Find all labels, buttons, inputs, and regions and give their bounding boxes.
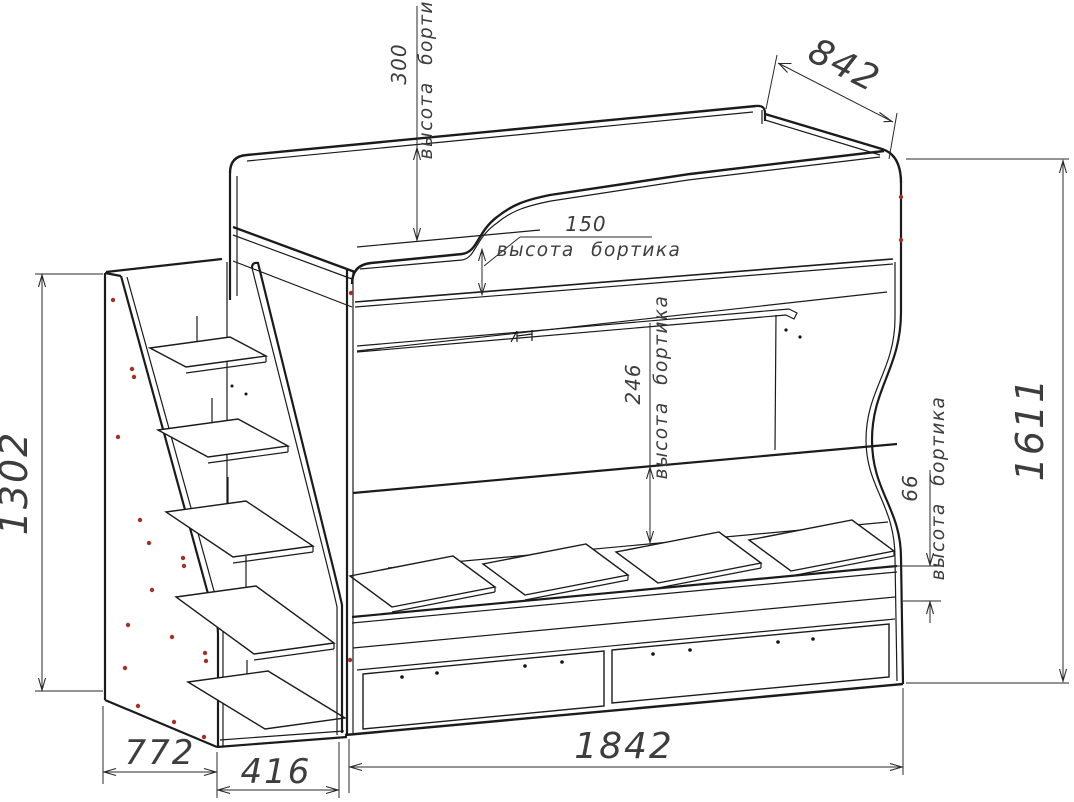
dimension-150: 150 высота бортика [479,212,682,295]
dim-842-value: 842 [802,31,887,101]
dimension-246: 246 высота бортика [621,295,672,543]
dim-150-label: высота бортика [497,240,682,261]
dim-300-value: 300 [387,43,411,84]
drawer-right [612,624,889,703]
dim-150-value: 150 [565,212,606,236]
bed-left-edge [347,270,353,735]
upper-back-rail [230,106,765,300]
dimension-416: 416 [217,742,339,798]
dim-1611-value: 1611 [1008,377,1052,482]
dim-246-label: высота бортика [651,295,672,480]
dim-66-label: высота бортика [928,396,949,581]
dim-772-value: 772 [125,733,196,773]
dim-300-label: высота бортика [416,0,437,159]
drawing-canvas: 1302 772 416 1842 1611 842 [0,0,1074,802]
dim-1302-value: 1302 [0,431,36,536]
dimension-300: 300 высота бортика [387,0,437,241]
bunk-bed-technical-drawing: 1302 772 416 1842 1611 842 [0,0,1074,802]
dim-1842-value: 1842 [574,726,674,767]
dimension-1302: 1302 [0,274,103,691]
dim-246-value: 246 [621,363,645,404]
dim-416-value: 416 [241,752,312,792]
upper-front-rail [352,151,884,284]
stair-front-stringer [252,263,342,735]
drawer-left [363,651,604,729]
dim-66-value: 66 [898,474,922,501]
